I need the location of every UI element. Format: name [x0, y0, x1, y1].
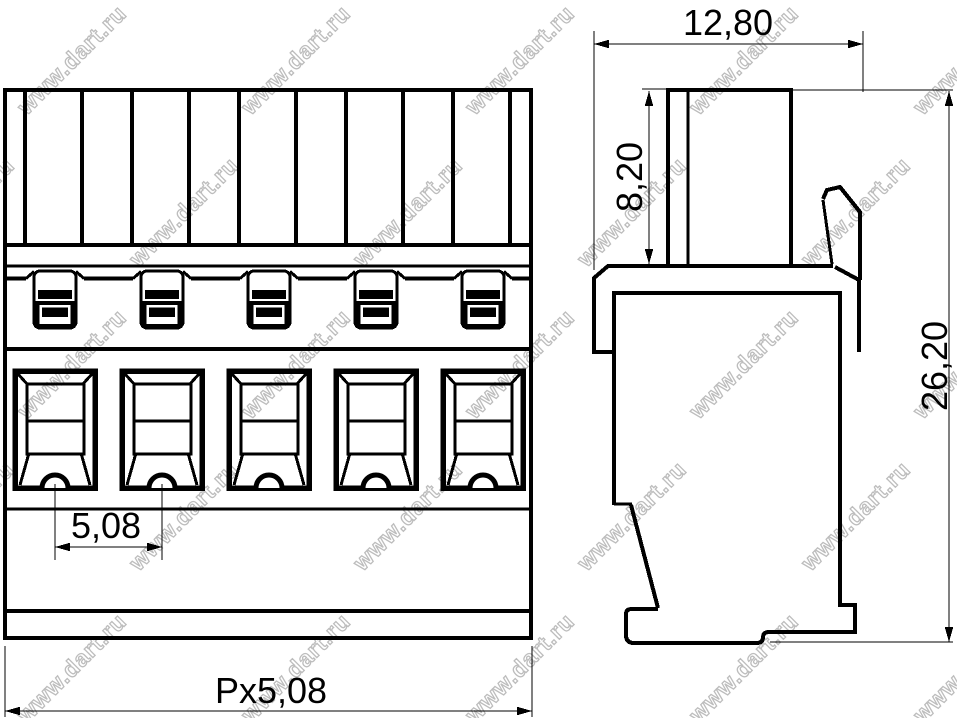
pitch-label: 5,08 [71, 505, 141, 546]
arrow-right [517, 707, 532, 716]
clamp-tab [240, 271, 298, 328]
dimension-total-height: 26,20 [770, 90, 955, 642]
socket [15, 371, 95, 488]
dimension-actuator-height: 8,20 [609, 89, 668, 264]
actuator-height-label: 8,20 [609, 142, 650, 212]
total-height-label: 26,20 [914, 321, 955, 411]
clamp-tab [26, 271, 84, 328]
dimension-total-width: Px5,08 [5, 646, 532, 717]
socket [122, 371, 202, 488]
arrow-left [594, 40, 609, 49]
arrow-down [945, 627, 954, 642]
actuator-dividers [25, 92, 510, 243]
clamp-tab [133, 271, 191, 328]
collar-left [594, 266, 833, 352]
clamp-tab [347, 271, 405, 328]
dimension-pitch: 5,08 [55, 484, 162, 560]
socket [443, 371, 523, 488]
housing-body [614, 293, 855, 643]
arrow-right [147, 543, 162, 552]
latch-hook-inner [823, 200, 832, 264]
arrow-right [848, 40, 863, 49]
actuator-block [668, 90, 791, 266]
dimension-housing-width: 12,80 [594, 2, 863, 270]
clamp-tab [454, 271, 512, 328]
socket [229, 371, 309, 488]
divider-line [346, 92, 403, 243]
divider-line [132, 92, 189, 243]
arrow-down [645, 249, 654, 264]
connector-technical-drawing: 5,08 Px5,08 12,80 8,20 [0, 0, 957, 718]
wire-entry-sockets [15, 371, 523, 488]
divider-line [239, 92, 296, 243]
divider-line [25, 92, 82, 243]
drawing-canvas: www.dart.ruwww.dart.ruwww.dart.ruwww.dar… [0, 0, 957, 718]
arrow-up [945, 91, 954, 106]
front-view [5, 90, 531, 638]
arrow-left [5, 707, 20, 716]
arrow-up [645, 91, 654, 106]
body-chamfer [631, 505, 658, 608]
total-width-label: Px5,08 [215, 670, 327, 711]
housing-width-label: 12,80 [683, 2, 773, 43]
socket [336, 371, 416, 488]
divider-line [453, 92, 510, 243]
arrow-left [55, 543, 70, 552]
